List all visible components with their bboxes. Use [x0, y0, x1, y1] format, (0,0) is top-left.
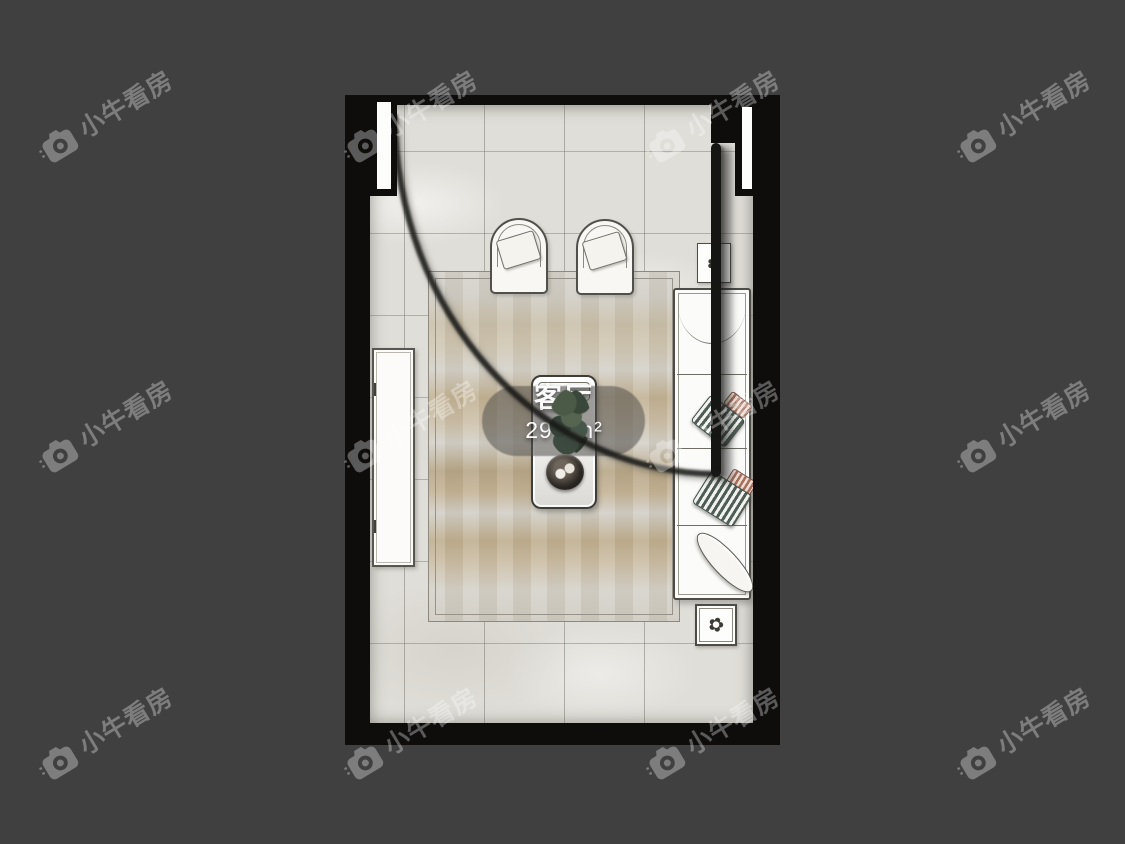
sofa-cushion-divider [677, 525, 747, 526]
flower-side-table: ✿ [695, 604, 737, 646]
watermark: 小牛看房 [31, 371, 179, 480]
floor-plan: ✿ ✿ 客厅 29.2m² [345, 95, 780, 745]
tv-cabinet [372, 348, 415, 567]
screenshot-canvas: ✿ ✿ 客厅 29.2m² 小牛看房小牛看房小牛看房小牛看房小牛看房小牛看房小牛… [0, 0, 1125, 844]
window-cap [742, 107, 752, 189]
wall-bottom [345, 723, 780, 745]
watermark-text: 小牛看房 [71, 371, 179, 455]
watermark-text: 小牛看房 [71, 61, 179, 145]
watermark-text: 小牛看房 [71, 678, 179, 762]
wall-left [345, 95, 370, 745]
watermark: 小牛看房 [949, 61, 1097, 170]
camera-icon [950, 429, 1001, 478]
camera-icon [32, 429, 83, 478]
chaise-cushion [689, 525, 760, 599]
camera-icon [32, 736, 83, 785]
camera-icon [950, 736, 1001, 785]
door-jamb-cap [377, 102, 391, 189]
camera-icon [32, 119, 83, 168]
watermark-text: 小牛看房 [989, 371, 1097, 455]
serving-tray [546, 454, 584, 490]
watermark: 小牛看房 [31, 61, 179, 170]
watermark: 小牛看房 [949, 678, 1097, 787]
watermark-text: 小牛看房 [989, 678, 1097, 762]
flower-icon: ✿ [705, 612, 727, 638]
camera-icon [950, 119, 1001, 168]
watermark: 小牛看房 [31, 678, 179, 787]
watermark: 小牛看房 [949, 371, 1097, 480]
watermark-text: 小牛看房 [989, 61, 1097, 145]
